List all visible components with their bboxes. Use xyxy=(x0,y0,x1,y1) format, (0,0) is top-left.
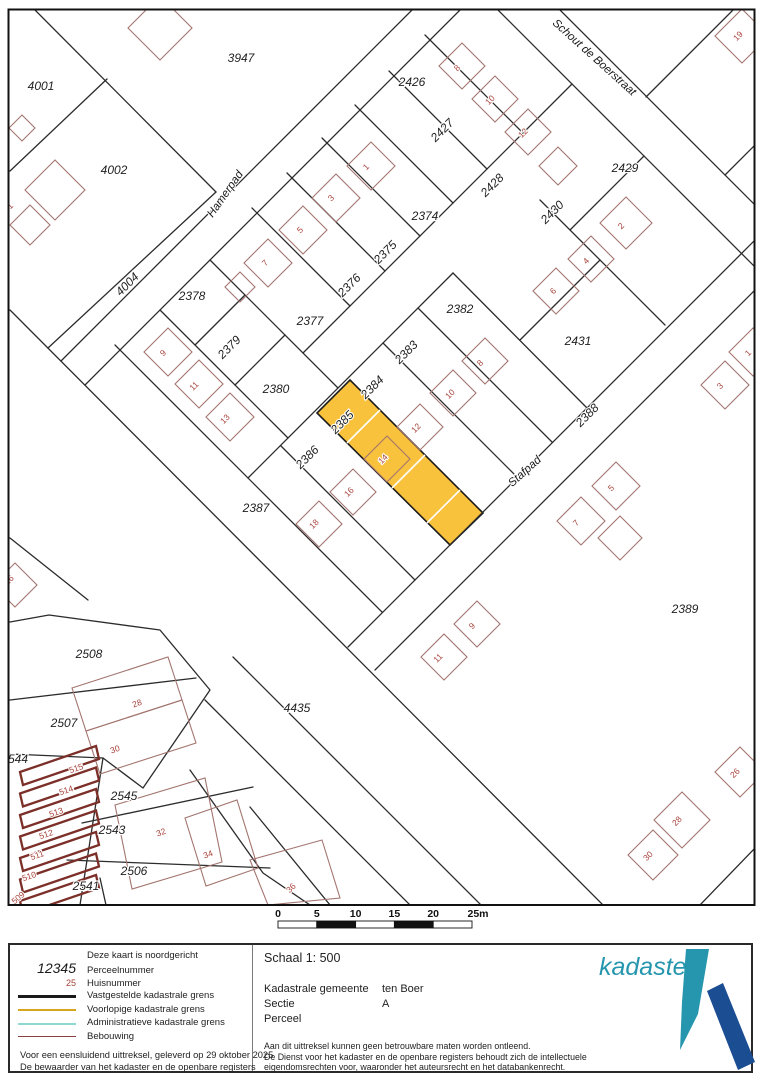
parcel-number-label: 3947 xyxy=(228,51,256,65)
parcel-boundary-line xyxy=(700,848,755,905)
parcel-boundary-line xyxy=(85,10,460,385)
house-number-label: 16 xyxy=(342,485,356,499)
scale-bar-tick: 5 xyxy=(314,908,320,920)
legend-footer-1: Voor een eensluidend uittreksel, gelever… xyxy=(20,1050,273,1060)
building-outline xyxy=(421,634,467,680)
house-number-label: 514 xyxy=(58,783,75,797)
scale-bar-tick: 25m xyxy=(467,908,488,920)
kadaster-logo: kadaster xyxy=(577,945,757,1071)
scale-bar-tick: 0 xyxy=(275,908,281,920)
scale-bar-tick: 15 xyxy=(389,908,401,920)
parcel-boundary-line xyxy=(10,615,210,788)
parcel-number-label: 2543 xyxy=(98,823,126,837)
house-number-label: 3 xyxy=(326,192,337,203)
parcel-number-label: 544 xyxy=(8,752,28,766)
parcel-number-label: 2427 xyxy=(427,115,457,145)
disclaimer-line-1: Aan dit uittreksel kunnen geen betrouwba… xyxy=(264,1041,531,1052)
parcel-number-label: 2378 xyxy=(178,289,206,303)
parcel-number-label: 2506 xyxy=(120,864,148,878)
parcel-boundary-line xyxy=(10,310,603,905)
building-outline xyxy=(206,393,254,441)
house-number-label: 9 xyxy=(158,347,169,358)
building-outline xyxy=(701,361,749,409)
building-outline xyxy=(539,147,577,185)
sectie-label: Sectie xyxy=(264,998,295,1010)
street-name-label: Hamerpad xyxy=(205,168,246,219)
house-number-label: 3 xyxy=(715,380,726,391)
legend-line-voorlopig xyxy=(18,1009,76,1011)
highlighted-parcel-2385 xyxy=(317,380,483,545)
house-number-label: 28 xyxy=(670,814,684,828)
parcel-number-label: 2431 xyxy=(564,334,592,348)
house-number-label: 28 xyxy=(131,697,144,710)
house-number-label: 5 xyxy=(295,224,306,235)
gemeente-label: Kadastrale gemeente xyxy=(264,983,369,995)
house-number-label: 5 xyxy=(606,482,617,493)
house-number-label: 26 xyxy=(728,766,742,780)
house-number-label: 10 xyxy=(443,387,457,401)
parcel-number-label: 2545 xyxy=(110,789,138,803)
kadaster-extract-page: 1981012135724691113810121416185791113262… xyxy=(0,0,763,1080)
parcel-number-label: 2383 xyxy=(391,338,421,368)
building-outline xyxy=(175,360,223,408)
kadaster-logo-blue-stroke xyxy=(707,983,755,1070)
legend-administratief-label: Administratieve kadastrale grens xyxy=(87,1017,225,1028)
legend-housenr-label: Huisnummer xyxy=(87,978,141,989)
parcel-number-label: 2375 xyxy=(370,238,400,268)
house-number-label: 6 xyxy=(548,285,559,296)
parcel-number-label: 4002 xyxy=(101,163,128,177)
house-number-label: 1 xyxy=(743,347,754,358)
building-outline xyxy=(600,197,652,249)
house-number-label: 12 xyxy=(409,421,423,435)
legend-line-vastgesteld xyxy=(18,995,76,998)
house-number-label: 1 xyxy=(361,161,372,172)
parcel-number-label: 2382 xyxy=(446,302,474,316)
legend-line-bebouwing xyxy=(18,1036,76,1037)
parcel-number-label: 2377 xyxy=(296,314,325,328)
parcel-boundary-line xyxy=(48,192,216,348)
perceel-label: Perceel xyxy=(264,1013,301,1025)
parcel-number-label: 2374 xyxy=(411,209,439,223)
house-number-label: 1 xyxy=(5,200,16,211)
building-outline xyxy=(72,657,182,731)
building-outline xyxy=(25,160,85,220)
house-number-label: 36 xyxy=(284,881,298,895)
scale-text: Schaal 1: 500 xyxy=(264,951,340,965)
house-number-label: 11 xyxy=(187,379,201,393)
building-outline xyxy=(0,563,37,607)
parcel-number-label: 2508 xyxy=(75,647,103,661)
parcel-boundary-line xyxy=(82,787,253,823)
parcel-number-label: 2507 xyxy=(50,716,79,730)
cadastral-map: 1981012135724691113810121416185791113262… xyxy=(0,0,763,940)
house-number-label: 4 xyxy=(581,255,592,266)
legend-vastgesteld-label: Vastgestelde kadastrale grens xyxy=(87,990,214,1001)
scale-bar-tick: 10 xyxy=(350,908,362,920)
parcel-boundary-line xyxy=(498,10,755,267)
building-outline xyxy=(225,272,255,302)
building-outline xyxy=(568,236,614,282)
disclaimer-line-3: eigendomsrechten voor, waaronder het aut… xyxy=(264,1062,565,1073)
building-outline xyxy=(462,338,508,384)
house-number-label: 30 xyxy=(109,743,122,756)
parcel-number-label: 2387 xyxy=(242,501,271,515)
parcel-boundary-line xyxy=(725,145,755,175)
parcel-boundary-line xyxy=(540,200,665,325)
scale-bar: 0510152025m xyxy=(275,908,488,928)
gemeente-value: ten Boer xyxy=(382,983,424,995)
building-outline xyxy=(312,174,360,222)
kadaster-logo-text: kadaster xyxy=(599,953,697,981)
house-number-label: 30 xyxy=(641,849,655,863)
parcel-number-label: 2379 xyxy=(214,333,244,363)
house-number-label: 32 xyxy=(155,826,168,839)
parcel-boundary-line xyxy=(10,678,196,700)
house-number-label: 19 xyxy=(731,29,745,43)
parcel-number-label: 2426 xyxy=(398,75,426,89)
parcel-boundary-line xyxy=(10,79,107,171)
house-number-label: 513 xyxy=(48,805,65,819)
parcel-number-label: 2386 xyxy=(292,443,322,473)
house-number-label: 18 xyxy=(307,517,321,531)
house-number-label: 7 xyxy=(571,517,582,528)
legend-line-administratief xyxy=(18,1023,76,1025)
sectie-value: A xyxy=(382,998,389,1010)
house-number-label: 11 xyxy=(431,651,445,665)
parcel-boundary-line xyxy=(100,878,106,905)
parcel-number-label: 2541 xyxy=(72,879,100,893)
parcel-number-label: 4435 xyxy=(284,701,311,715)
legend-north-note: Deze kaart is noordgericht xyxy=(87,950,198,961)
parcel-boundary-line xyxy=(115,345,382,612)
parcel-number-label: 2429 xyxy=(611,161,639,175)
parcel-number-label: 4001 xyxy=(28,79,55,93)
building-outline xyxy=(598,516,642,560)
building-outline xyxy=(592,462,640,510)
legend-footer-2: De bewaarder van het kadaster en de open… xyxy=(20,1062,256,1072)
parcel-number-label: 2388 xyxy=(572,401,602,431)
scale-bar-tick: 20 xyxy=(427,908,439,920)
house-number-label: 9 xyxy=(467,620,478,631)
parcel-boundary-line xyxy=(646,10,733,97)
building-outline xyxy=(9,115,35,141)
legend-panel: Deze kaart is noordgericht 12345 Perceel… xyxy=(8,943,753,1073)
legend-voorlopig-label: Voorlopige kadastrale grens xyxy=(87,1004,205,1015)
building-outline xyxy=(185,800,258,886)
legend-house-sample: 25 xyxy=(18,978,76,988)
house-number-label: 2 xyxy=(616,220,627,231)
building-outline xyxy=(454,601,500,647)
disclaimer-line-2: De Dienst voor het kadaster en de openba… xyxy=(264,1052,587,1063)
parcel-boundary-line xyxy=(560,10,755,205)
building-outline xyxy=(10,205,50,245)
street-name-label: Schout de Boerstraat xyxy=(550,17,639,99)
house-number-label: 7 xyxy=(260,257,271,268)
parcel-number-label: 2380 xyxy=(262,382,290,396)
building-outline xyxy=(439,43,485,89)
parcel-boundary-line xyxy=(425,35,523,133)
legend-bebouwing-label: Bebouwing xyxy=(87,1031,134,1042)
legend-parcel-sample: 12345 xyxy=(18,960,76,976)
house-number-label: 13 xyxy=(218,412,232,426)
legend-parcelnr-label: Perceelnummer xyxy=(87,965,154,976)
building-outline xyxy=(347,142,395,190)
house-number-label: 34 xyxy=(202,848,215,861)
parcel-number-label: 2389 xyxy=(671,602,699,616)
